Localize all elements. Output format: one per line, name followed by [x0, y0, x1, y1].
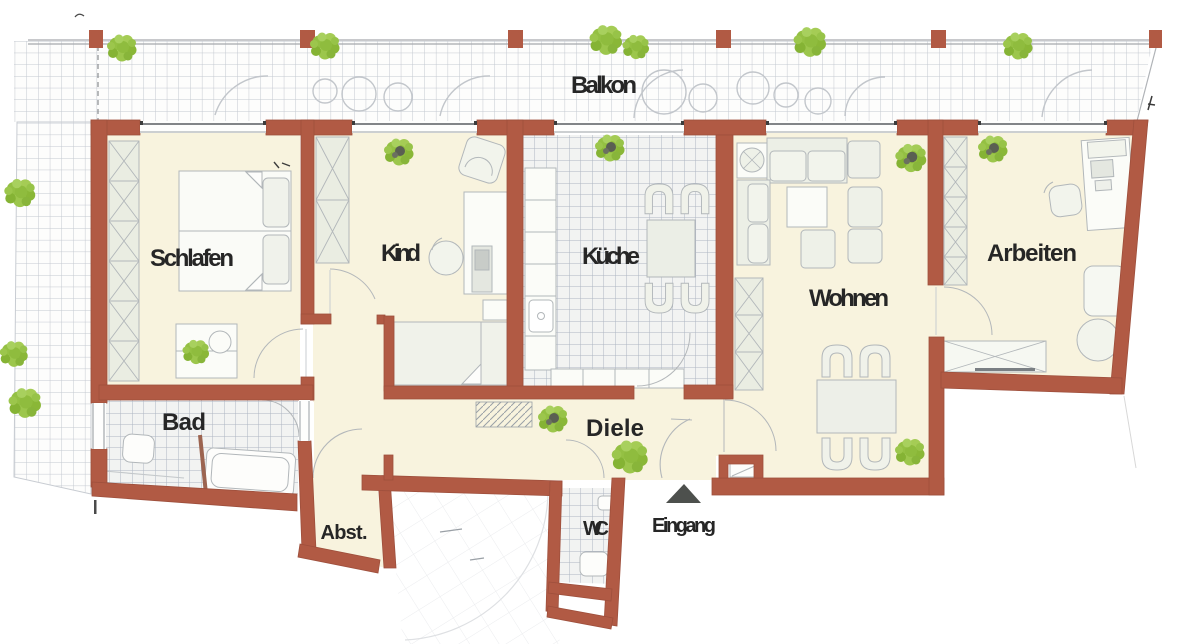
svg-text:Arbeiten: Arbeiten — [987, 240, 1077, 267]
svg-text:Küche: Küche — [582, 243, 640, 270]
svg-text:Kind: Kind — [381, 240, 421, 267]
svg-text:Abst.: Abst. — [321, 522, 368, 544]
svg-text:Eingang: Eingang — [652, 515, 716, 537]
svg-text:Wohnen: Wohnen — [809, 285, 889, 312]
svg-text:Schlafen: Schlafen — [150, 245, 234, 272]
svg-text:Balkon: Balkon — [571, 72, 637, 99]
svg-text:Diele: Diele — [586, 415, 644, 442]
svg-text:Bad: Bad — [162, 409, 206, 436]
svg-text:WC: WC — [583, 518, 609, 540]
